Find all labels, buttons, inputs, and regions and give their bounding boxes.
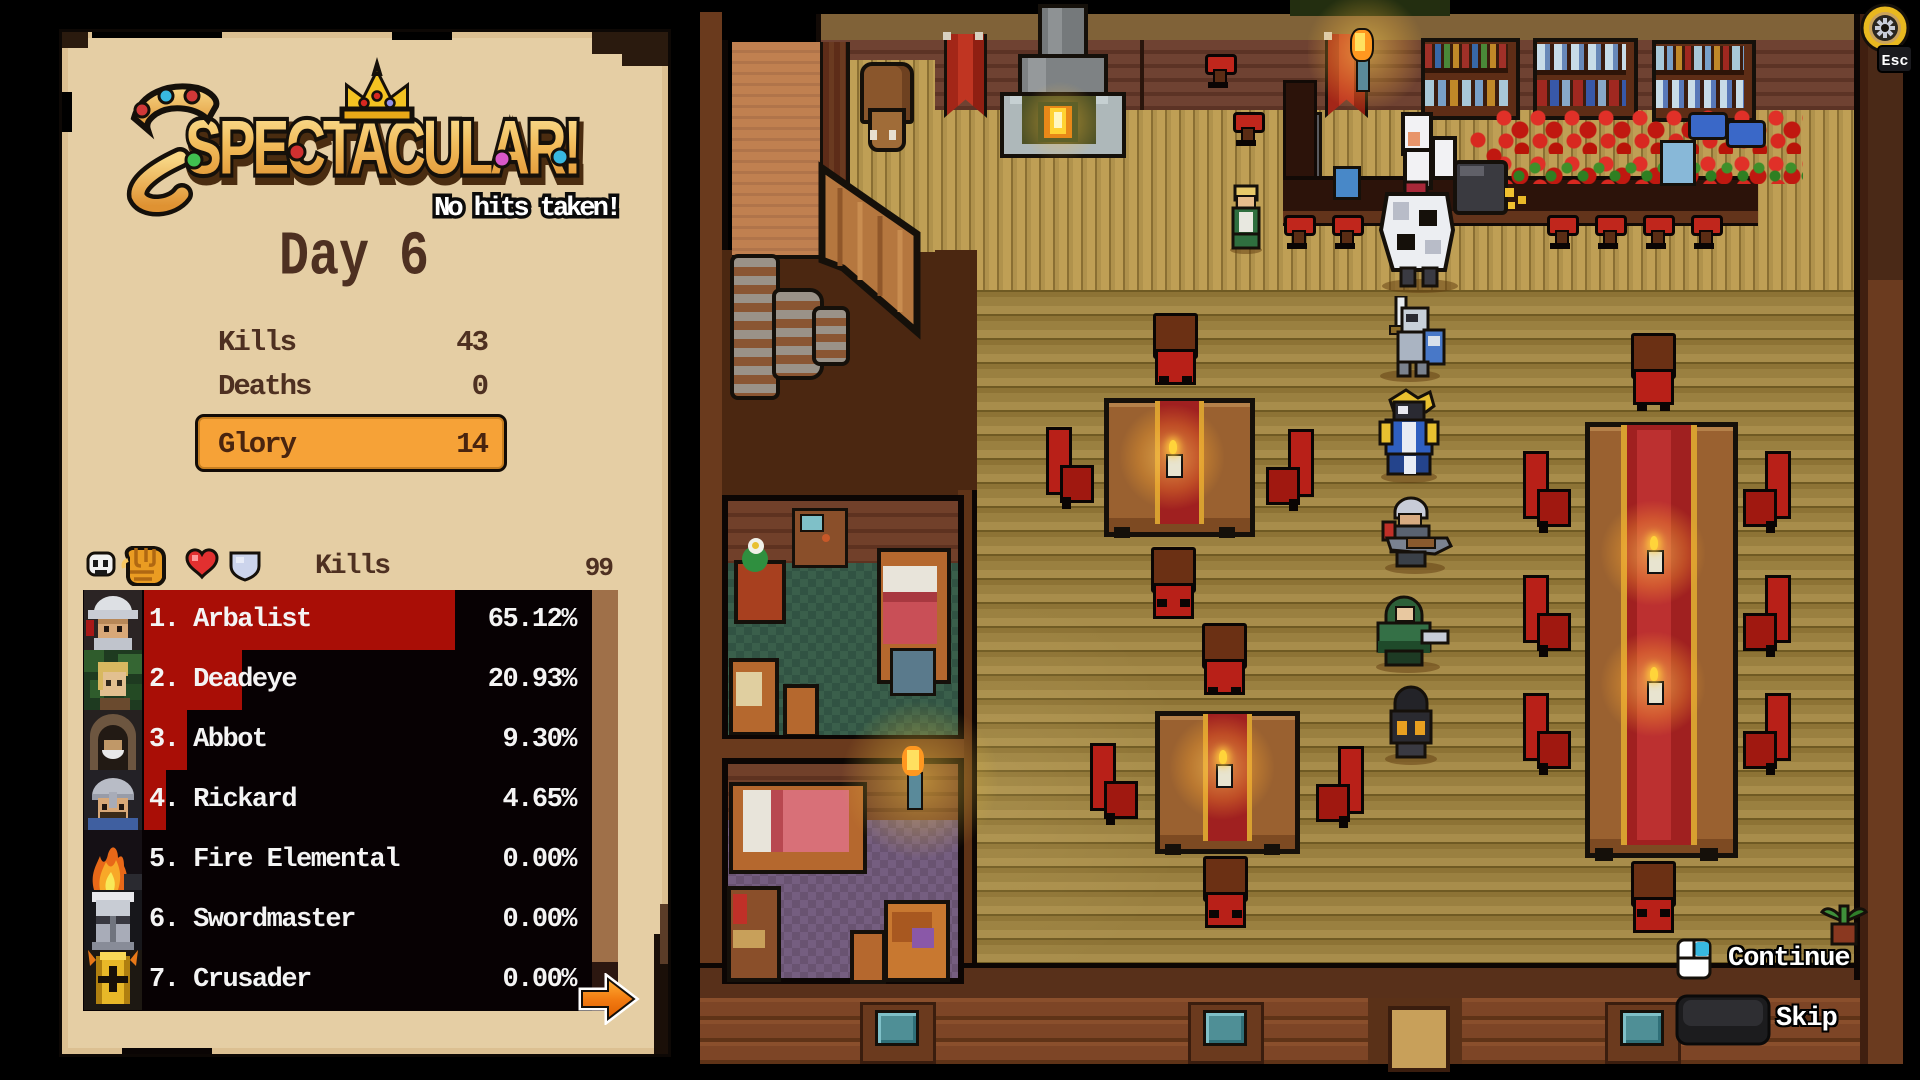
svg-text:Esc: Esc [1881,53,1908,70]
svg-text:No hits taken!: No hits taken! [434,194,619,224]
